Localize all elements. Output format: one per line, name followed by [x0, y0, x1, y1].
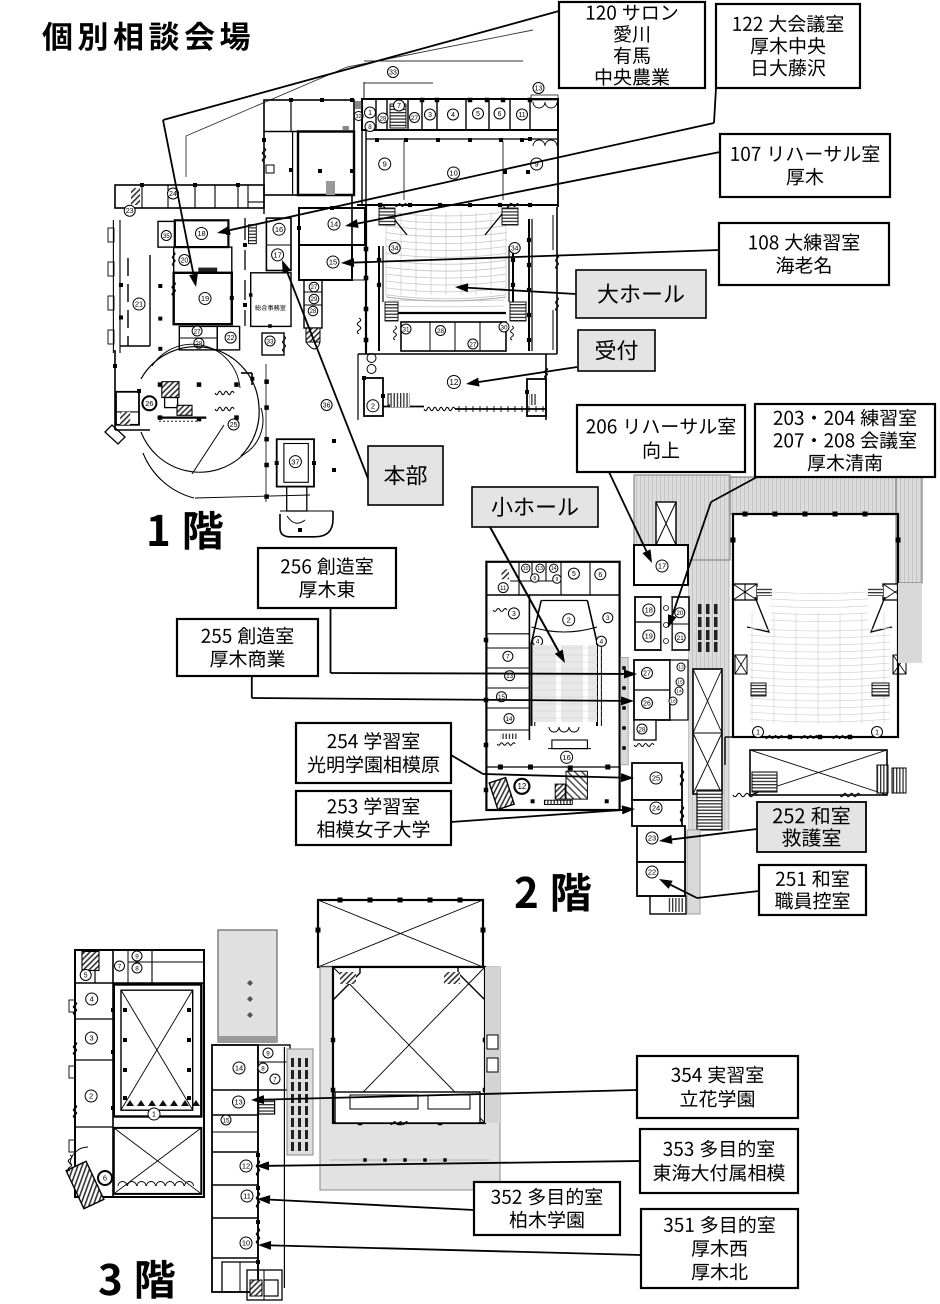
svg-text:23: 23 [648, 834, 656, 843]
svg-text:28: 28 [380, 115, 387, 122]
svg-text:9: 9 [383, 160, 387, 169]
svg-text:20: 20 [676, 610, 683, 617]
svg-text:3: 3 [512, 611, 516, 618]
svg-text:13: 13 [678, 665, 684, 671]
svg-text:1: 1 [875, 729, 879, 736]
svg-text:27: 27 [311, 285, 318, 291]
svg-text:15: 15 [329, 258, 337, 267]
svg-text:9: 9 [556, 577, 559, 583]
svg-text:7: 7 [506, 654, 510, 661]
svg-text:17: 17 [273, 251, 281, 260]
svg-text:11: 11 [518, 112, 525, 119]
svg-text:7: 7 [118, 963, 122, 970]
svg-text:17: 17 [658, 562, 666, 571]
svg-text:34: 34 [511, 245, 519, 252]
svg-text:31: 31 [403, 326, 410, 333]
svg-text:10: 10 [449, 169, 457, 178]
svg-text:4: 4 [536, 639, 540, 646]
svg-text:12: 12 [449, 378, 459, 387]
svg-text:19: 19 [201, 294, 209, 303]
svg-text:7: 7 [273, 1076, 277, 1083]
svg-text:16: 16 [562, 753, 570, 762]
svg-text:15: 15 [223, 1117, 230, 1124]
svg-text:29: 29 [311, 297, 318, 303]
svg-text:16: 16 [670, 699, 676, 705]
svg-text:5: 5 [572, 571, 576, 578]
svg-text:22: 22 [648, 868, 656, 877]
svg-text:33: 33 [267, 338, 274, 345]
svg-text:28: 28 [437, 328, 444, 335]
svg-text:20: 20 [181, 257, 189, 264]
svg-text:21: 21 [135, 300, 143, 309]
svg-text:9: 9 [266, 1050, 270, 1057]
svg-text:18: 18 [645, 606, 653, 615]
svg-text:14: 14 [235, 1064, 243, 1073]
svg-text:6: 6 [103, 1174, 107, 1183]
svg-text:26: 26 [643, 700, 651, 707]
svg-text:25: 25 [652, 774, 660, 783]
svg-text:5: 5 [84, 972, 88, 979]
svg-text:21: 21 [677, 635, 684, 642]
svg-text:14: 14 [330, 220, 338, 229]
svg-text:25: 25 [230, 422, 238, 429]
svg-text:7: 7 [397, 103, 401, 110]
svg-text:27: 27 [194, 328, 201, 335]
svg-text:13: 13 [535, 85, 543, 92]
svg-text:28: 28 [639, 726, 646, 733]
svg-text:34: 34 [391, 245, 399, 252]
svg-text:13: 13 [234, 1098, 242, 1107]
svg-text:4: 4 [600, 639, 604, 646]
svg-text:11: 11 [500, 585, 507, 592]
svg-text:8: 8 [368, 124, 372, 131]
svg-text:32: 32 [356, 114, 362, 120]
svg-text:30: 30 [501, 324, 508, 331]
svg-text:2: 2 [89, 1092, 93, 1101]
svg-text:35: 35 [163, 233, 170, 240]
svg-text:1: 1 [152, 1110, 156, 1119]
svg-text:9: 9 [135, 953, 139, 960]
svg-text:4: 4 [451, 112, 455, 119]
svg-text:2: 2 [371, 402, 375, 411]
svg-text:19: 19 [645, 632, 653, 641]
svg-text:3: 3 [606, 615, 610, 622]
svg-text:14: 14 [551, 566, 557, 572]
svg-text:14: 14 [676, 689, 682, 695]
svg-text:12: 12 [242, 1162, 250, 1171]
svg-text:22: 22 [227, 335, 235, 342]
svg-text:3: 3 [428, 112, 432, 119]
svg-text:8: 8 [135, 965, 139, 972]
svg-text:5: 5 [476, 111, 480, 118]
svg-text:16: 16 [275, 225, 283, 234]
svg-text:3: 3 [89, 1034, 93, 1043]
svg-text:1: 1 [368, 110, 372, 117]
svg-text:23: 23 [126, 208, 134, 215]
svg-text:13: 13 [537, 566, 543, 572]
svg-text:10: 10 [523, 566, 529, 572]
svg-text:37: 37 [291, 457, 299, 466]
svg-text:14: 14 [506, 716, 513, 723]
svg-text:4: 4 [90, 995, 94, 1004]
svg-text:26: 26 [145, 399, 153, 408]
svg-text:24: 24 [169, 191, 177, 198]
svg-text:6: 6 [498, 111, 502, 118]
svg-text:36: 36 [323, 402, 331, 409]
svg-text:27: 27 [643, 670, 651, 677]
svg-text:15: 15 [677, 680, 683, 686]
svg-text:28: 28 [310, 309, 317, 315]
svg-text:33: 33 [389, 69, 397, 76]
svg-text:24: 24 [652, 804, 660, 813]
svg-text:12: 12 [517, 782, 526, 791]
svg-text:18: 18 [197, 229, 205, 238]
svg-text:10: 10 [242, 1239, 250, 1248]
svg-text:27: 27 [469, 341, 476, 348]
svg-text:11: 11 [243, 1192, 251, 1201]
svg-text:27: 27 [411, 115, 418, 122]
svg-text:1: 1 [756, 729, 760, 736]
svg-text:6: 6 [598, 572, 602, 579]
svg-text:8: 8 [533, 576, 536, 582]
svg-text:2: 2 [567, 616, 571, 625]
svg-text:8: 8 [261, 1065, 265, 1072]
